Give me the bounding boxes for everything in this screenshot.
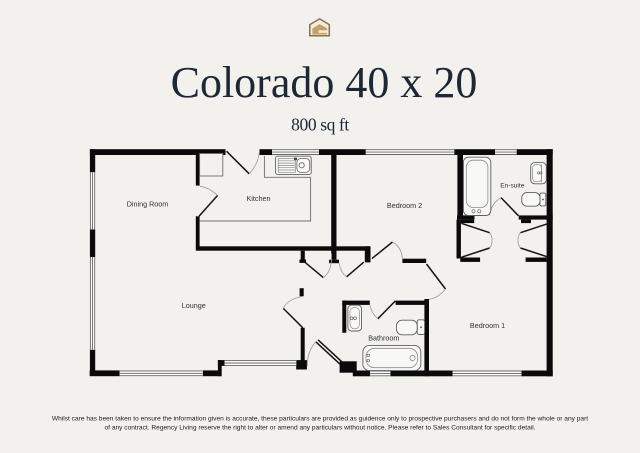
svg-text:Whilst care has been taken to: Whilst care has been taken to ensure the…: [52, 415, 588, 422]
svg-text:Colorado 40 x 20: Colorado 40 x 20: [171, 58, 478, 107]
svg-text:Kitchen: Kitchen: [247, 194, 271, 203]
svg-text:800 sq ft: 800 sq ft: [291, 115, 349, 135]
svg-text:Lounge: Lounge: [182, 301, 206, 310]
svg-text:Bathroom: Bathroom: [368, 334, 399, 343]
svg-text:En-suite: En-suite: [500, 183, 525, 190]
svg-text:Bedroom 1: Bedroom 1: [470, 321, 505, 330]
svg-text:of any contract. Regency Livin: of any contract. Regency Living reserve …: [104, 424, 535, 431]
svg-text:Dining Room: Dining Room: [127, 199, 169, 208]
svg-text:Bedroom 2: Bedroom 2: [387, 201, 422, 210]
